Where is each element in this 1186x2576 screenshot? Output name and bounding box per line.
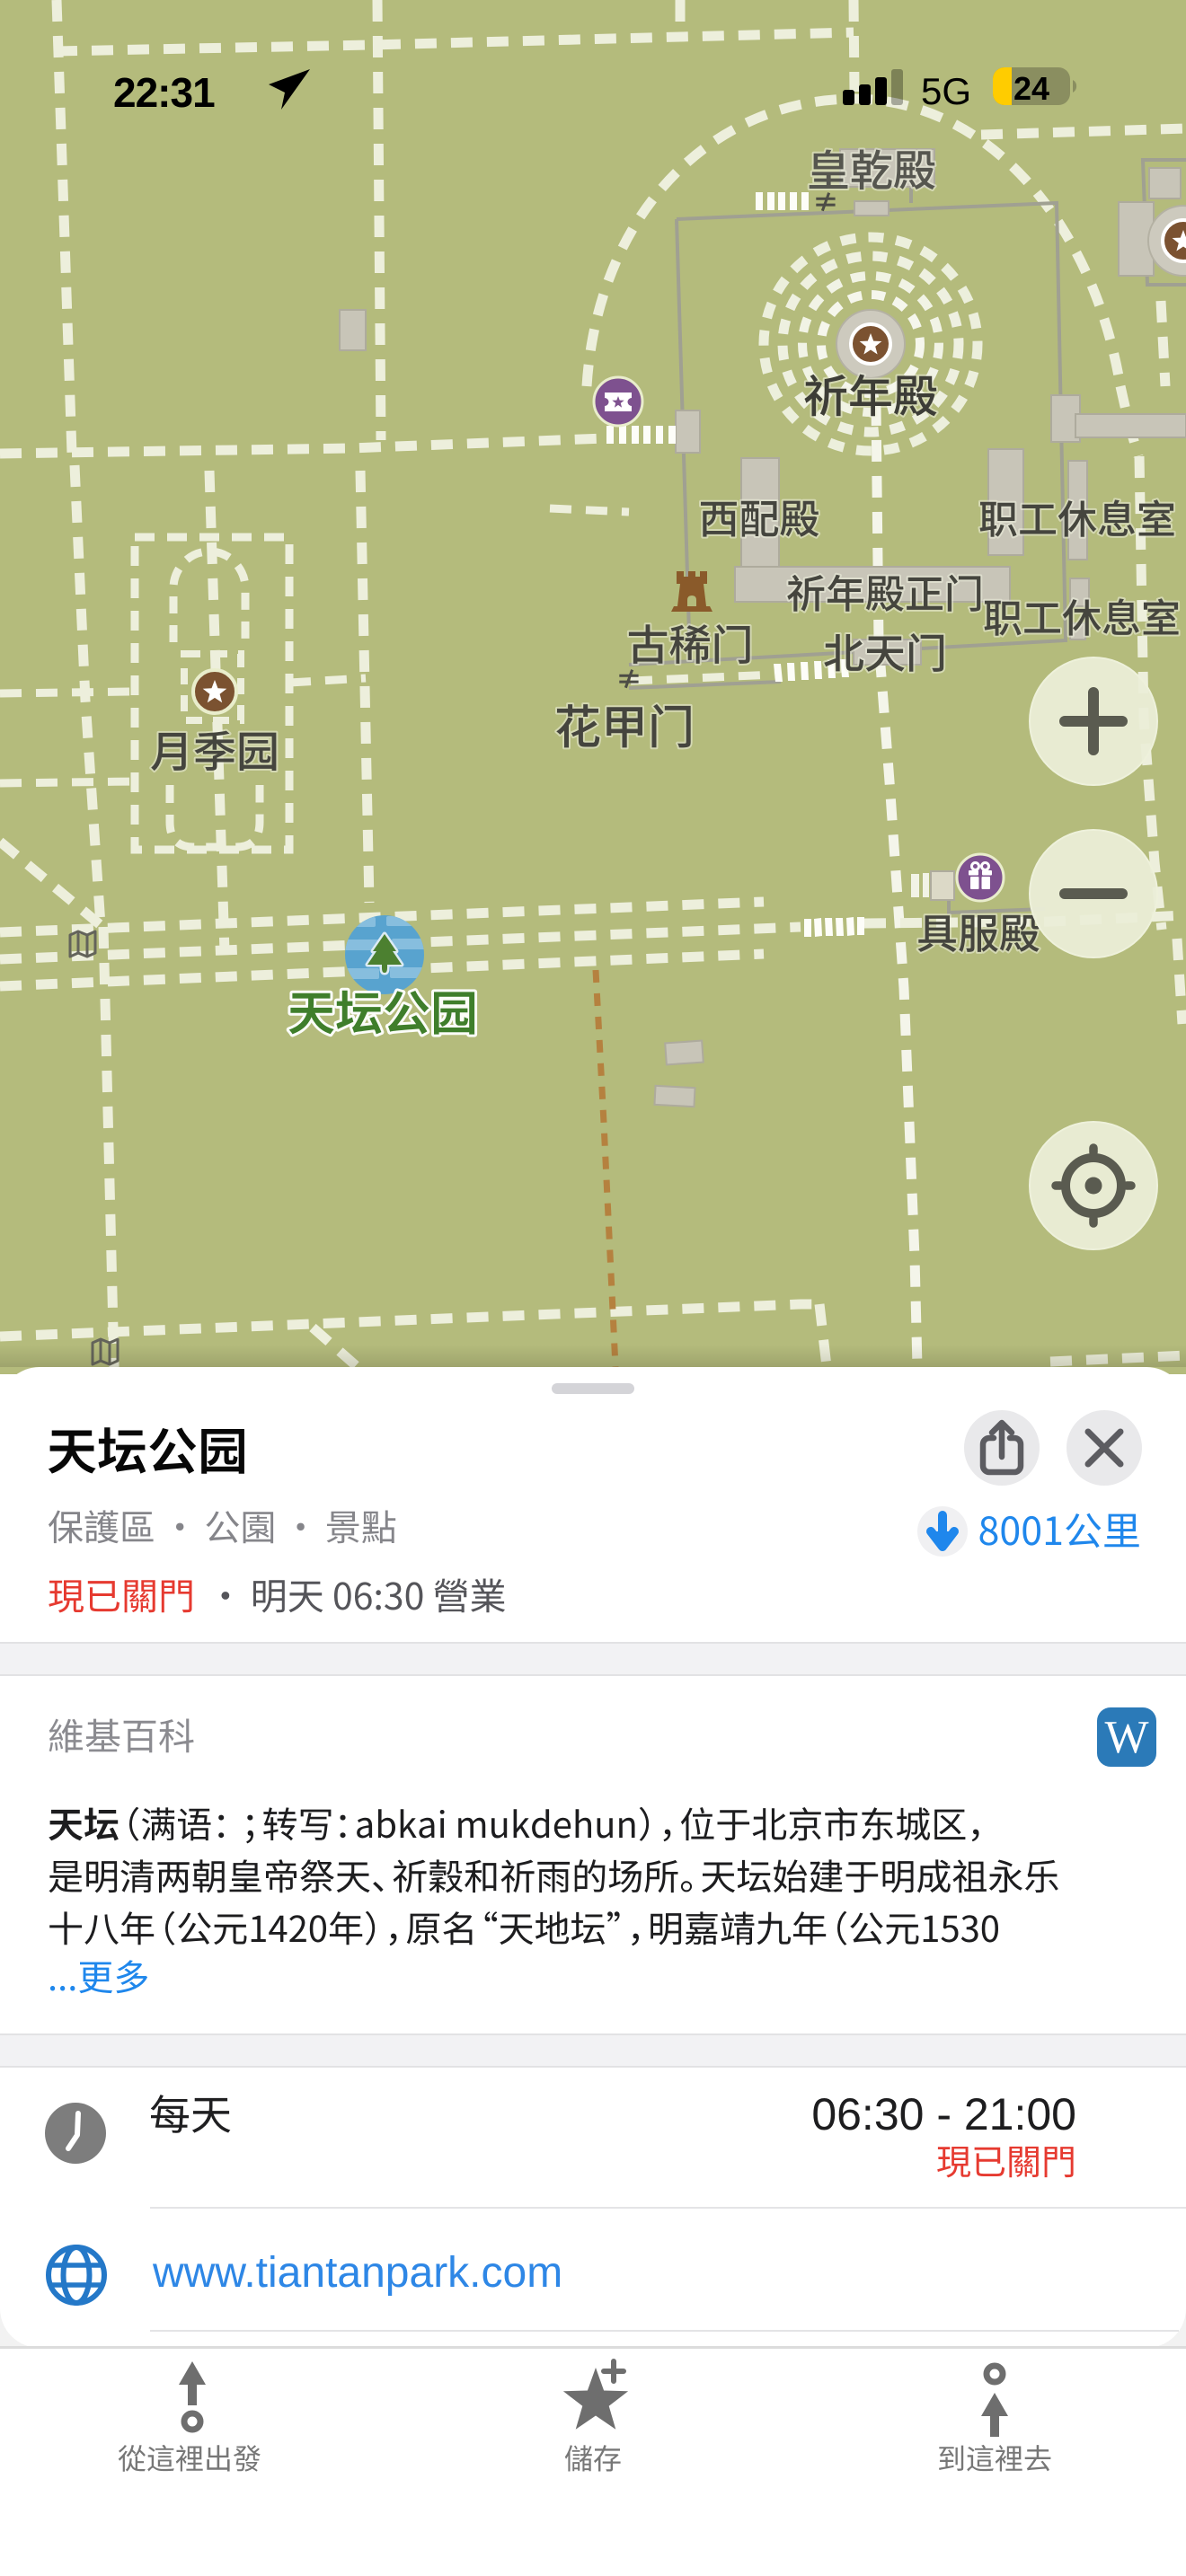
svg-text:24: 24 bbox=[1013, 70, 1049, 107]
svg-text:22:31: 22:31 bbox=[113, 69, 215, 116]
svg-text:5G: 5G bbox=[921, 70, 971, 112]
svg-text:W: W bbox=[1104, 1712, 1148, 1763]
svg-text:06:30 - 21:00: 06:30 - 21:00 bbox=[811, 2089, 1076, 2139]
svg-text:www.tiantanpark.com: www.tiantanpark.com bbox=[152, 2249, 562, 2297]
